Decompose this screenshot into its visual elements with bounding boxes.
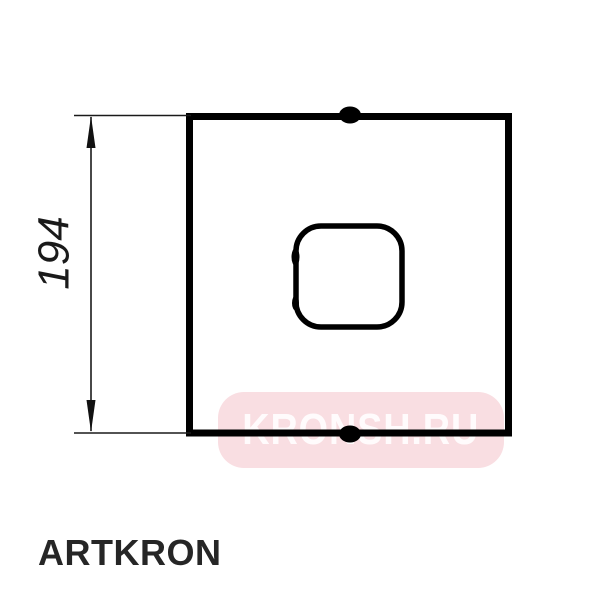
bottom-tab <box>339 426 361 443</box>
arrow-down-icon <box>87 400 96 432</box>
center-hole <box>296 226 402 327</box>
hole-bump-lower <box>292 296 299 311</box>
dimension-value: 194 <box>30 216 79 289</box>
arrow-up-icon <box>87 116 96 148</box>
top-tab <box>339 107 361 124</box>
drawing-canvas: KRONSH.RU 194 ARTKRON <box>0 0 600 600</box>
hole-bump-upper <box>292 248 300 266</box>
plate-outline <box>190 117 509 434</box>
brand-label: ARTKRON <box>38 532 221 574</box>
technical-drawing: 194 <box>0 0 600 600</box>
